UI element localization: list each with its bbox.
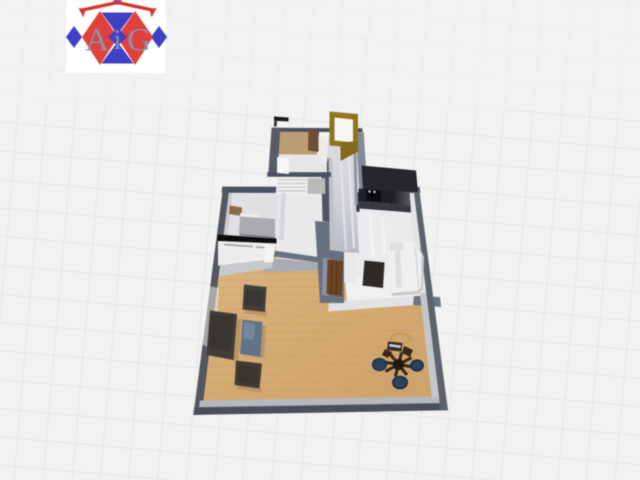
svg-text:G: G — [127, 23, 151, 59]
svg-text:i: i — [114, 25, 122, 56]
svg-text:A: A — [85, 23, 109, 59]
